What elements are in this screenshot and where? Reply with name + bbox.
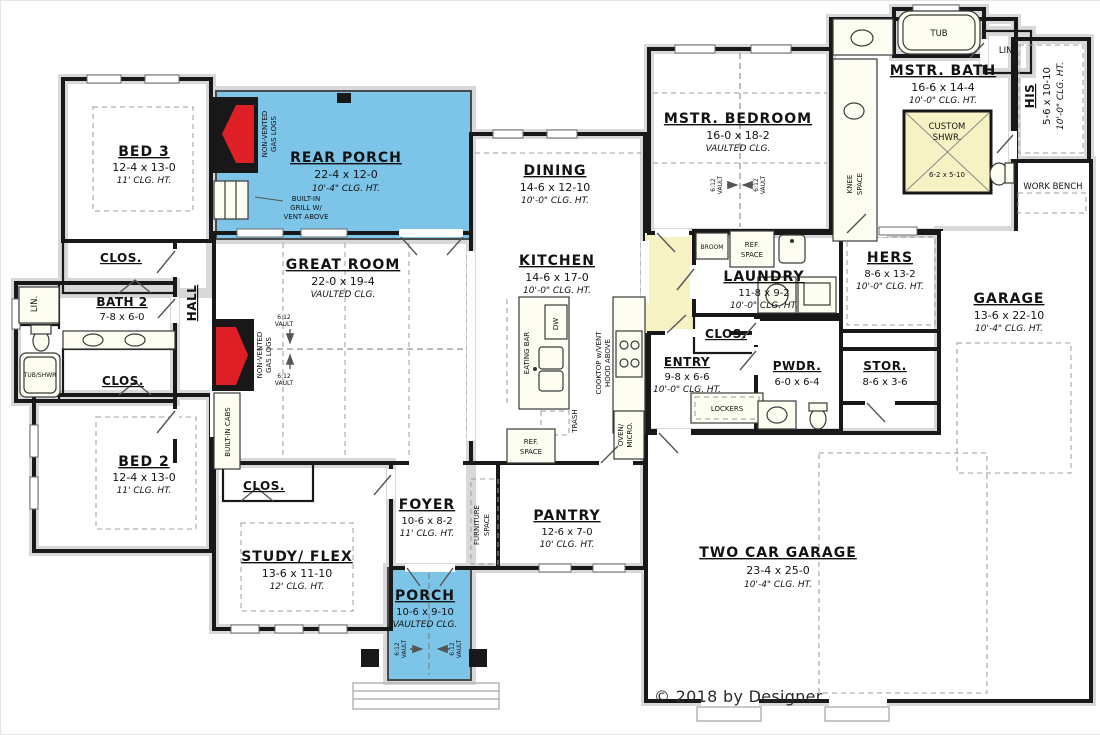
label-mstr-bedroom-dims: 16-0 x 18-2: [706, 129, 769, 142]
label-pantry-clg: 10' CLG. HT.: [540, 540, 595, 550]
label-work-bench: WORK BENCH: [1023, 182, 1082, 192]
label-custom-shwr-1: CUSTOM: [929, 122, 966, 132]
label-lockers: LOCKERS: [711, 405, 744, 413]
label-grill-3: VENT ABOVE: [283, 213, 328, 221]
label-garage-clg: 10'-4" CLG. HT.: [975, 324, 1043, 334]
label-his-dims: 5-6 x 10-10: [1042, 67, 1053, 125]
mstr-sink-2: [844, 103, 864, 119]
label-foyer: FOYER: [399, 497, 455, 513]
label-tub: TUB: [929, 29, 947, 39]
room-stor: [841, 349, 939, 403]
label-tub-shwr: TUB/SHWR: [23, 372, 57, 379]
label-rear-porch-dims: 22-4 x 12-0: [314, 168, 377, 181]
label-oven-2: MICRO.: [626, 422, 634, 447]
bath2-vanity: [63, 331, 175, 349]
label-his: HIS: [1023, 84, 1037, 109]
label-study-dims: 13-6 x 11-10: [262, 567, 332, 580]
label-study: STUDY/ FLEX: [241, 549, 353, 565]
kitchen-sink-1: [539, 347, 563, 369]
label-pantry: PANTRY: [533, 508, 600, 524]
front-porch-steps: [353, 683, 499, 709]
label-porch-clg: VAULTED CLG.: [393, 620, 458, 630]
bath2-sink-1: [83, 334, 103, 346]
label-dining: DINING: [524, 163, 587, 179]
label-clos-study: CLOS.: [243, 479, 285, 493]
label-vault-gr1a: 6:12: [277, 314, 291, 321]
label-bed3: BED 3: [118, 144, 169, 160]
label-vault-p2b: VAULT: [456, 639, 463, 658]
label-clos-bed3: CLOS.: [100, 251, 142, 265]
label-bed3-clg: 11' CLG. HT.: [117, 176, 172, 186]
label-mstr-bedroom: MSTR. BEDROOM: [664, 111, 812, 127]
label-pwdr-dims: 6-0 x 6-4: [775, 377, 820, 388]
label-great-room-clg: VAULTED CLG.: [311, 290, 376, 300]
label-broom: BROOM: [701, 244, 724, 251]
label-mstr-bath: MSTR. BATH: [890, 63, 996, 79]
label-custom-shwr-2: SHWR.: [933, 133, 962, 143]
label-vault-p1a: 6:12: [394, 642, 401, 656]
dryer-door: [804, 283, 830, 305]
label-his-clg: 10'-0" CLG. HT.: [1056, 62, 1066, 130]
label-two-car-dims: 23-4 x 25-0: [746, 564, 809, 577]
label-built-in-cabs: BUILT-IN CABS: [224, 407, 232, 457]
label-study-clg: 12' CLG. HT.: [270, 582, 325, 592]
label-pantry-dims: 12-6 x 7-0: [541, 527, 592, 538]
label-dining-dims: 14-6 x 12-10: [520, 181, 590, 194]
front-porch-post-right: [469, 649, 487, 667]
label-hers-dims: 8-6 x 13-2: [864, 269, 915, 280]
label-oven-1: OVEN/: [617, 423, 625, 446]
label-foyer-dims: 10-6 x 8-2: [401, 516, 452, 527]
label-grill-2: GRILL W/: [290, 204, 322, 212]
label-rear-porch-clg: 10'-4" CLG. HT.: [312, 184, 380, 194]
label-pwdr: PWDR.: [773, 359, 822, 373]
label-entry: ENTRY: [664, 355, 710, 369]
mstr-vanity-knee: [833, 59, 877, 241]
label-vault-p2a: 6:12: [449, 642, 456, 656]
label-entry-dims: 9-8 x 6-6: [665, 372, 710, 383]
label-bed2-clg: 11' CLG. HT.: [117, 486, 172, 496]
pwdr-toilet: [810, 409, 826, 429]
label-furniture-2: SPACE: [483, 514, 491, 536]
label-vault-mb2a: 6:12: [753, 178, 760, 192]
pwdr-toilet-tank: [809, 403, 827, 411]
label-ref-k-1: REF.: [524, 438, 538, 446]
label-porch: PORCH: [395, 588, 455, 604]
label-non-vented-2b: GAS LOGS: [265, 336, 273, 372]
label-two-car-clg: 10'-4" CLG. HT.: [744, 580, 812, 590]
label-kitchen-dims: 14-6 x 17-0: [525, 271, 588, 284]
label-lin-left: LIN.: [30, 296, 40, 312]
label-vault-mb2b: VAULT: [760, 175, 767, 194]
label-vault-p1b: VAULT: [401, 639, 408, 658]
label-entry-clg: 10'-0" CLG. HT.: [653, 385, 721, 395]
laundry-ref-space: [730, 231, 774, 267]
label-porch-dims: 10-6 x 9-10: [396, 607, 454, 618]
label-mstr-bath-dims: 16-6 x 14-4: [911, 81, 974, 94]
mstr-toilet-tank: [1005, 163, 1014, 183]
label-furniture-1: FURNITURE: [473, 505, 481, 545]
label-kitchen: KITCHEN: [519, 253, 595, 269]
label-mstr-bedroom-clg: VAULTED CLG.: [706, 144, 771, 154]
label-knee-1: KNEE: [846, 175, 854, 194]
label-dining-clg: 10'-0" CLG. HT.: [521, 196, 589, 206]
built-in-grill: [214, 181, 248, 219]
cooktop: [616, 331, 642, 377]
label-clos-bath2: CLOS.: [102, 374, 144, 388]
label-laundry-c: 10'-0" CLG. HT.: [730, 301, 798, 311]
label-hall: HALL: [185, 285, 199, 322]
label-rear-porch: REAR PORCH: [290, 150, 402, 166]
kitchen-faucet: [533, 367, 537, 371]
kitchen-ref-space: [507, 429, 555, 463]
label-custom-shwr-dims: 6-2 x 5-10: [929, 171, 965, 179]
label-laundry-d: 11-8 x 9-2: [738, 288, 789, 299]
label-laundry: LAUNDRY: [723, 269, 804, 285]
bath2-toilet-tank: [31, 325, 51, 334]
label-vault-gr2b: VAULT: [275, 380, 294, 387]
room-clos-bath2: [63, 349, 175, 395]
label-eating-bar: EATING BAR: [523, 332, 531, 374]
label-grill-1: BUILT-IN: [292, 195, 320, 203]
label-cooktop-2: HOOD ABOVE: [604, 339, 612, 387]
label-foyer-clg: 11' CLG. HT.: [400, 529, 455, 539]
label-vault-mb1a: 6:12: [710, 178, 717, 192]
label-great-room-dims: 22-0 x 19-4: [311, 275, 374, 288]
room-bed3: [63, 79, 211, 241]
label-vault-mb1b: VAULT: [717, 175, 724, 194]
label-cooktop-1: COOKTOP w/VENT: [595, 331, 603, 395]
label-bed3-dims: 12-4 x 13-0: [112, 161, 175, 174]
pwdr-sink: [767, 407, 787, 423]
garage-door-steps: [697, 707, 889, 721]
label-vault-gr1b: VAULT: [275, 321, 294, 328]
label-hers: HERS: [867, 250, 913, 266]
label-non-vented-2a: NON-VENTED: [256, 332, 264, 379]
label-bath2: BATH 2: [96, 295, 147, 309]
mstr-sink-1: [851, 30, 873, 46]
label-trash: TRASH: [571, 409, 579, 433]
label-garage: GARAGE: [974, 291, 1045, 307]
copyright-text: © 2018 by Designer: [654, 687, 823, 706]
label-garage-dims: 13-6 x 22-10: [974, 309, 1044, 322]
bath2-sink-2: [125, 334, 145, 346]
label-knee-2: SPACE: [856, 173, 864, 195]
label-stor: STOR.: [863, 359, 907, 373]
label-clos-laundry: CLOS.: [705, 327, 747, 341]
label-bed2-dims: 12-4 x 13-0: [112, 471, 175, 484]
floor-plan-page: BED 3 12-4 x 13-0 11' CLG. HT. REAR PORC…: [0, 0, 1100, 735]
label-lin-bath: LIN.: [999, 46, 1015, 56]
label-hers-clg: 10'-0" CLG. HT.: [856, 282, 924, 292]
label-bed2: BED 2: [118, 454, 169, 470]
label-dw: DW: [552, 318, 560, 330]
front-porch-post-left: [361, 649, 379, 667]
label-non-vented-1b: GAS LOGS: [270, 115, 278, 151]
label-great-room: GREAT ROOM: [286, 257, 401, 273]
label-non-vented-1a: NON-VENTED: [261, 111, 269, 158]
label-mstr-bath-clg: 10'-0" CLG. HT.: [909, 96, 977, 106]
room-hers: [841, 231, 941, 331]
porch-post: [337, 93, 351, 103]
label-kitchen-clg: 10'-0" CLG. HT.: [523, 286, 591, 296]
label-stor-dims: 8-6 x 3-6: [863, 377, 908, 388]
label-two-car-garage: TWO CAR GARAGE: [699, 545, 857, 561]
label-ref-k-2: SPACE: [520, 448, 542, 456]
floor-plan-canvas: BED 3 12-4 x 13-0 11' CLG. HT. REAR PORC…: [1, 1, 1100, 734]
label-vault-gr2a: 6:12: [277, 373, 291, 380]
room-mstr-hall: [645, 233, 694, 333]
label-bath2-dims: 7-8 x 6-0: [100, 312, 145, 323]
kitchen-sink-2: [539, 371, 563, 391]
label-ref-l-2: SPACE: [741, 251, 763, 259]
label-ref-l-1: REF.: [745, 241, 759, 249]
